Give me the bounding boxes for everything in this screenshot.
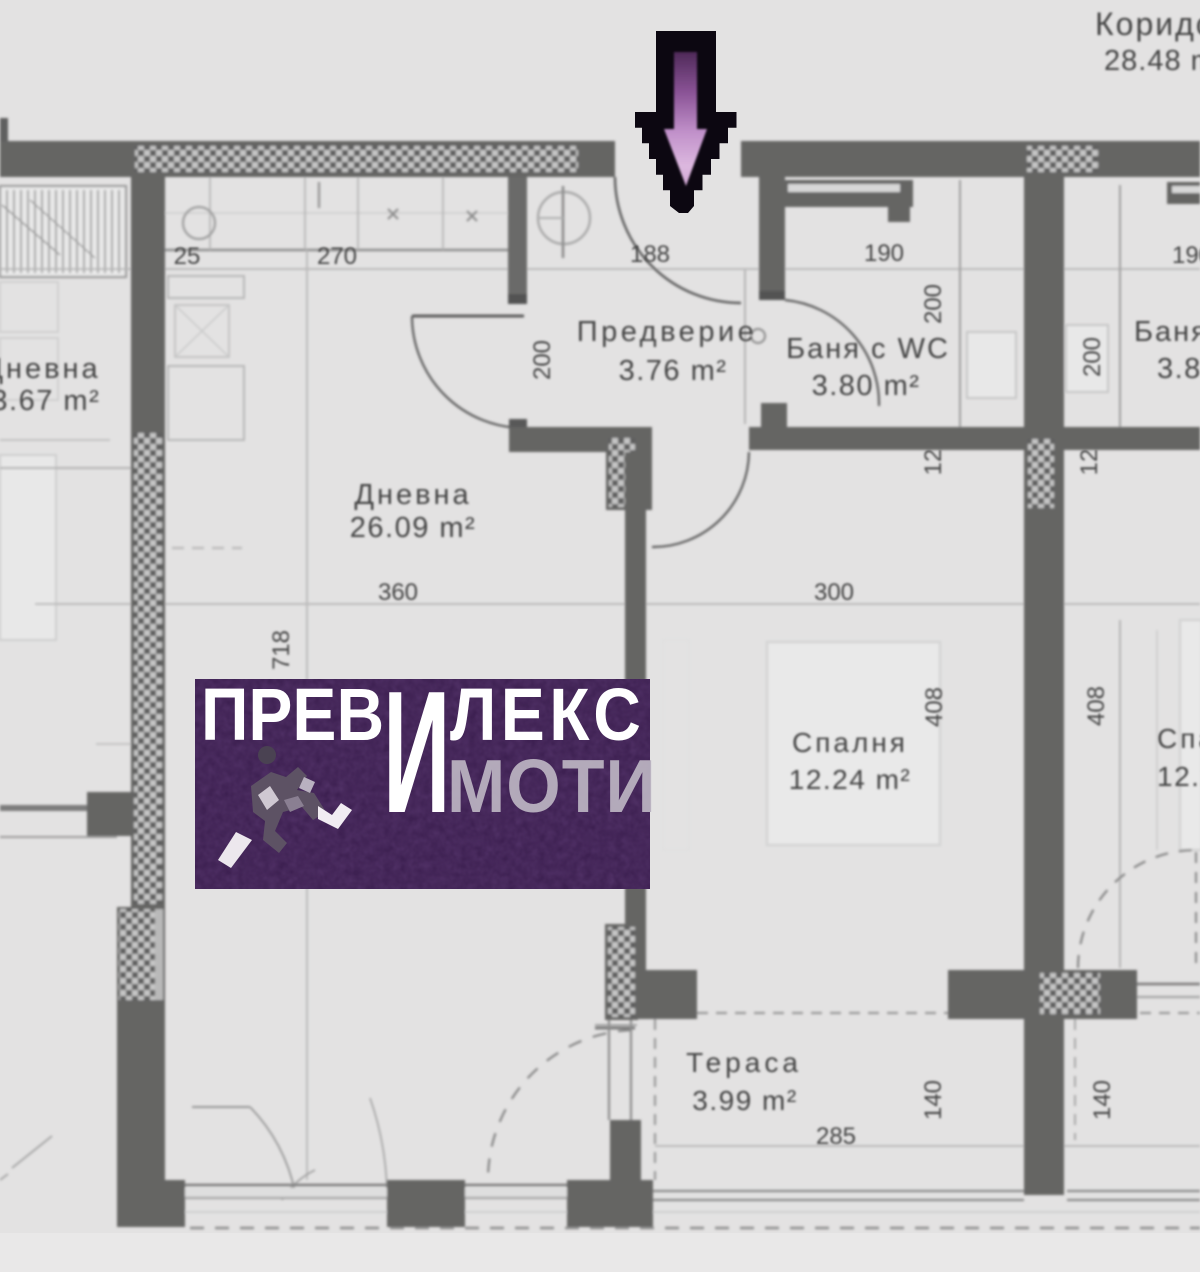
svg-text:26.09 m²: 26.09 m² — [350, 512, 476, 544]
svg-text:ПРЕВ: ПРЕВ — [201, 673, 384, 755]
svg-text:140: 140 — [920, 1080, 947, 1120]
svg-text:200: 200 — [529, 340, 556, 380]
svg-text:300: 300 — [814, 579, 854, 606]
svg-text:188: 188 — [630, 241, 670, 268]
svg-text:12.24 m²: 12.24 m² — [1157, 761, 1200, 792]
svg-text:ЛЕКС: ЛЕКС — [450, 673, 645, 755]
svg-text:28.48 m²: 28.48 m² — [1104, 45, 1200, 77]
svg-text:360: 360 — [378, 579, 418, 606]
svg-text:Дневна: Дневна — [0, 353, 101, 385]
svg-text:285: 285 — [816, 1123, 856, 1150]
svg-text:718: 718 — [268, 630, 295, 670]
svg-text:Предверие: Предверие — [577, 316, 758, 348]
svg-text:200: 200 — [1079, 337, 1106, 377]
svg-text:Тераса: Тераса — [686, 1047, 802, 1078]
svg-text:140: 140 — [1089, 1080, 1116, 1120]
svg-text:Спалня: Спалня — [1157, 723, 1200, 754]
svg-text:Баня с WC: Баня с WC — [1134, 316, 1200, 348]
svg-text:190: 190 — [864, 240, 904, 267]
svg-text:190: 190 — [1172, 242, 1200, 269]
svg-text:3.76 m²: 3.76 m² — [619, 355, 728, 387]
svg-text:3.80 m²: 3.80 m² — [812, 370, 921, 402]
svg-text:270: 270 — [317, 243, 357, 270]
svg-text:23.67 m²: 23.67 m² — [0, 385, 100, 417]
svg-text:Баня с WC: Баня с WC — [786, 333, 950, 365]
svg-text:200: 200 — [920, 284, 947, 324]
svg-text:25: 25 — [174, 243, 201, 270]
svg-text:Спалня: Спалня — [792, 727, 908, 758]
svg-text:12: 12 — [920, 449, 947, 476]
svg-text:Дневна: Дневна — [354, 479, 471, 511]
svg-text:12.24 m²: 12.24 m² — [789, 764, 912, 795]
svg-text:3.99 m²: 3.99 m² — [692, 1085, 797, 1116]
svg-text:408: 408 — [1083, 686, 1110, 726]
svg-text:408: 408 — [921, 687, 948, 727]
svg-text:МОТИ: МОТИ — [447, 744, 657, 828]
svg-text:3.80 m²: 3.80 m² — [1157, 353, 1200, 385]
svg-text:12: 12 — [1076, 449, 1103, 476]
svg-text:И: И — [383, 654, 451, 849]
svg-text:Коридор: Коридор — [1095, 6, 1200, 42]
